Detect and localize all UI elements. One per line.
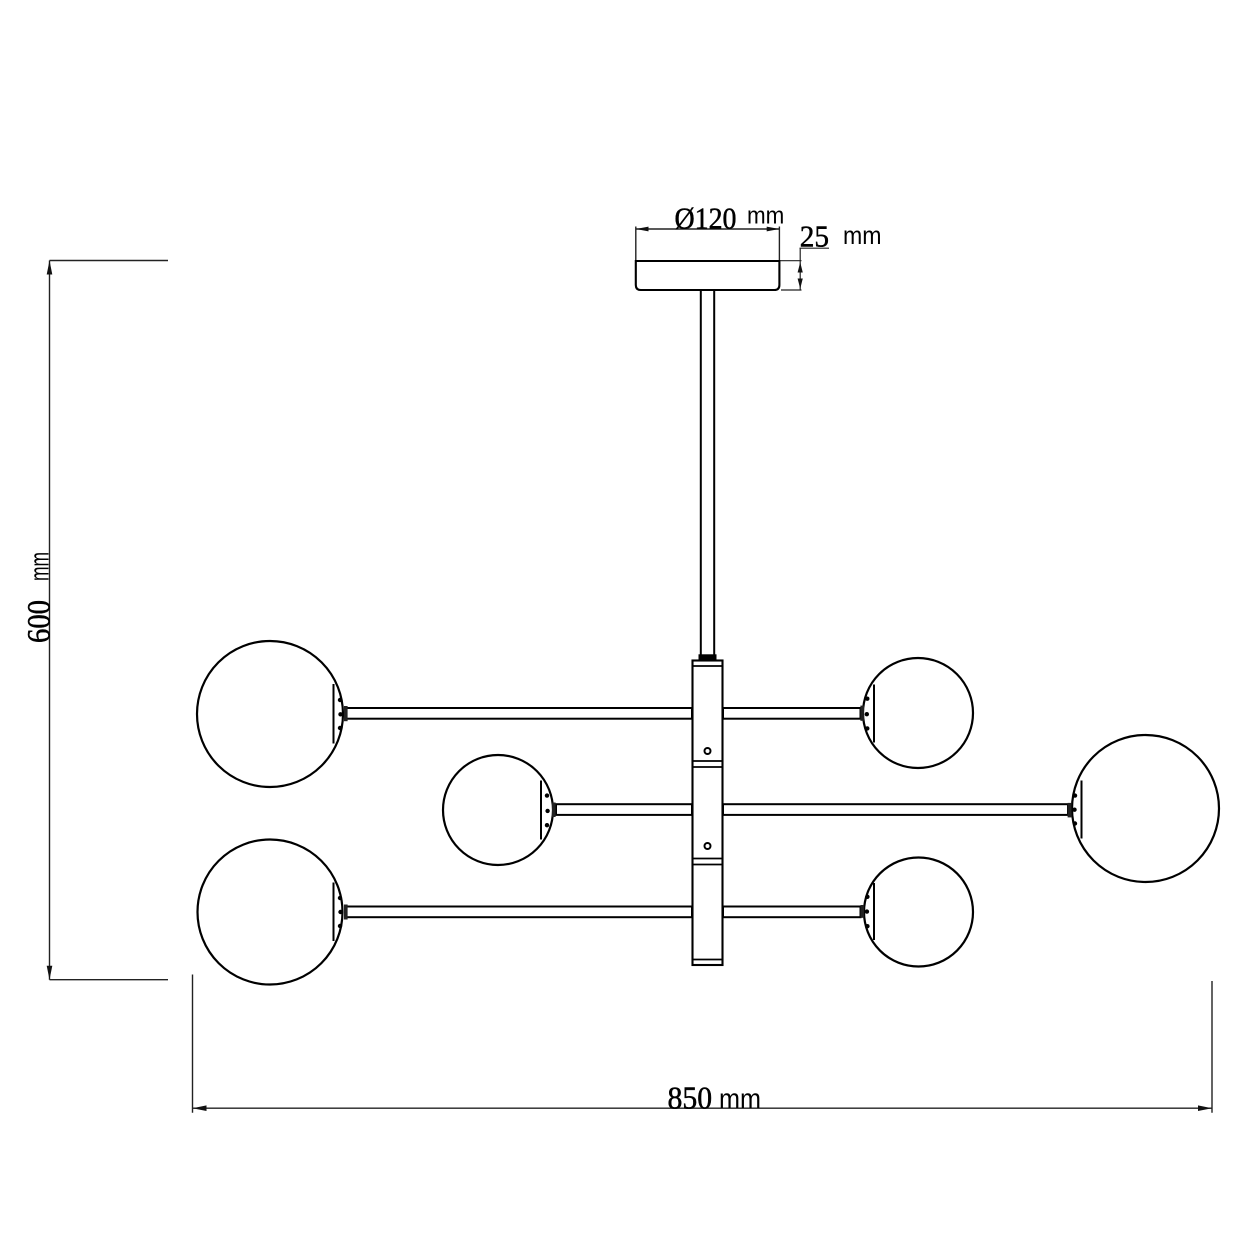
svg-text:mm: mm [719, 1083, 761, 1114]
svg-text:600: 600 [21, 600, 57, 643]
svg-text:850: 850 [668, 1080, 713, 1116]
svg-text:Ø120: Ø120 [675, 200, 737, 235]
svg-text:mm: mm [747, 203, 784, 230]
svg-text:mm: mm [843, 222, 882, 250]
svg-text:25: 25 [800, 219, 829, 254]
svg-text:mm: mm [25, 552, 55, 581]
